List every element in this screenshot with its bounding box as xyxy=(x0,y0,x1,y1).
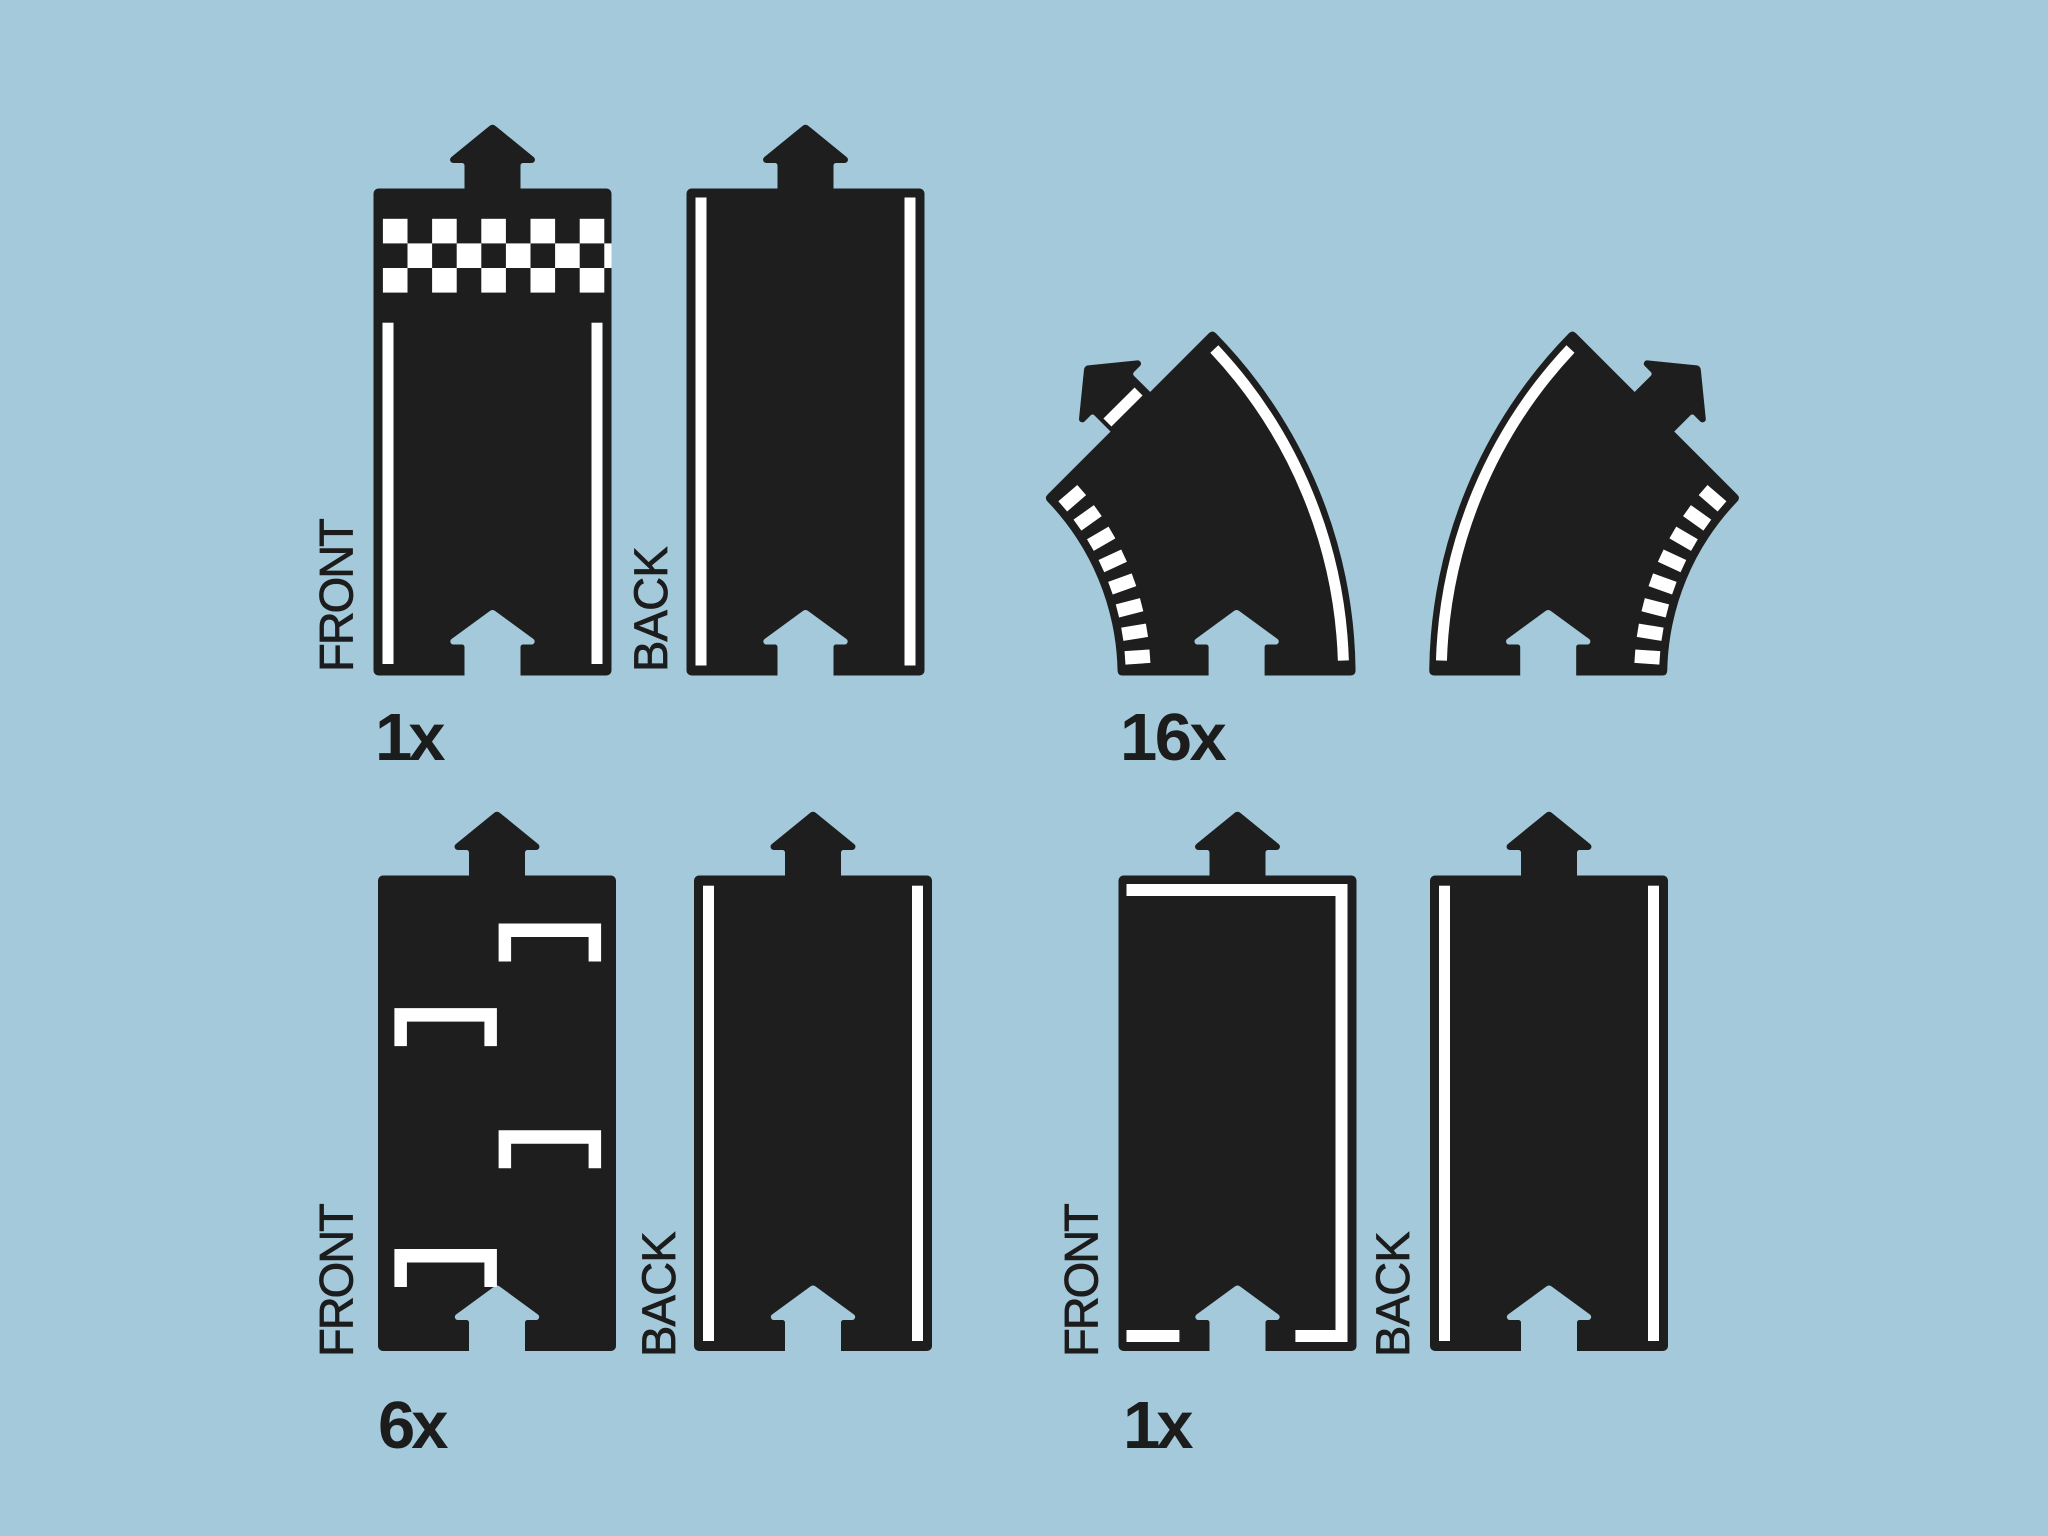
svg-text:FRONT: FRONT xyxy=(1055,1204,1108,1357)
svg-text:FRONT: FRONT xyxy=(310,1204,363,1357)
svg-text:1x: 1x xyxy=(375,700,445,775)
svg-text:BACK: BACK xyxy=(1366,1232,1419,1357)
svg-text:16x: 16x xyxy=(1120,700,1227,775)
svg-text:1x: 1x xyxy=(1123,1388,1193,1463)
svg-text:FRONT: FRONT xyxy=(310,519,363,672)
svg-text:6x: 6x xyxy=(378,1388,448,1463)
svg-text:BACK: BACK xyxy=(624,547,677,672)
svg-text:BACK: BACK xyxy=(632,1232,685,1357)
